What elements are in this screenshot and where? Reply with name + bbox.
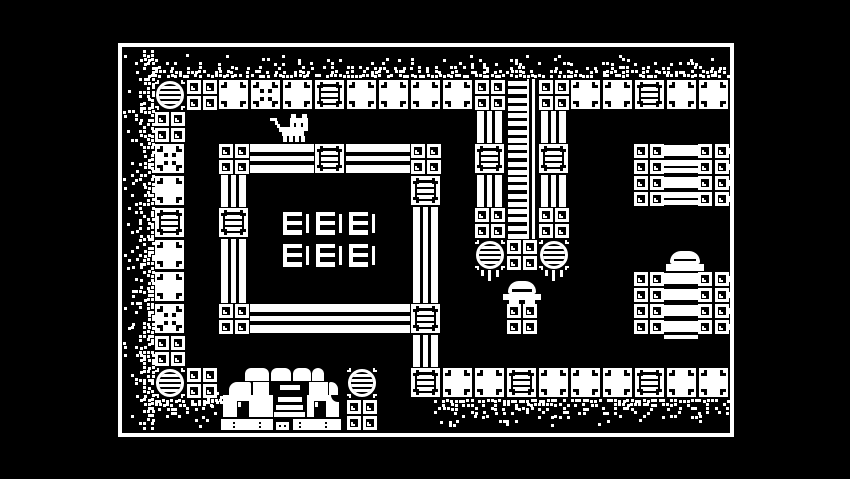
- px: [325, 426, 327, 428]
- px: [276, 422, 289, 430]
- cat-leg: [283, 136, 287, 142]
- px: [674, 259, 696, 261]
- mushroom-sprite: [503, 281, 541, 304]
- sprite-layer: [122, 47, 730, 433]
- px: [509, 300, 519, 304]
- building-step: [280, 385, 300, 390]
- game-viewport[interactable]: [118, 43, 734, 437]
- cat-body: [282, 127, 304, 136]
- px: [271, 368, 291, 381]
- px: [299, 426, 301, 428]
- cat-tail: [279, 127, 282, 132]
- px: [299, 422, 301, 424]
- building-step: [278, 397, 302, 402]
- px: [309, 382, 328, 395]
- px: [508, 281, 536, 294]
- px: [512, 289, 532, 292]
- px: [233, 426, 235, 428]
- px: [279, 425, 281, 427]
- px: [229, 382, 251, 395]
- px: [259, 426, 261, 428]
- cat-leg: [295, 136, 299, 142]
- px: [233, 422, 235, 424]
- cat-leg: [301, 136, 305, 142]
- px: [315, 402, 318, 407]
- building-step: [276, 405, 303, 410]
- px: [284, 425, 286, 427]
- px: [293, 368, 311, 381]
- px: [329, 382, 338, 395]
- dome-sprite: [666, 251, 704, 272]
- game-stage: [0, 0, 850, 479]
- px: [525, 300, 535, 304]
- px: [238, 402, 241, 407]
- px: [670, 251, 700, 264]
- building-sprite: [221, 362, 343, 430]
- cat-leg: [289, 136, 293, 142]
- px: [325, 422, 327, 424]
- cat-sprite: [266, 114, 312, 144]
- px: [666, 264, 704, 271]
- px: [259, 422, 261, 424]
- px: [253, 382, 269, 395]
- px: [245, 368, 269, 381]
- px: [312, 368, 324, 381]
